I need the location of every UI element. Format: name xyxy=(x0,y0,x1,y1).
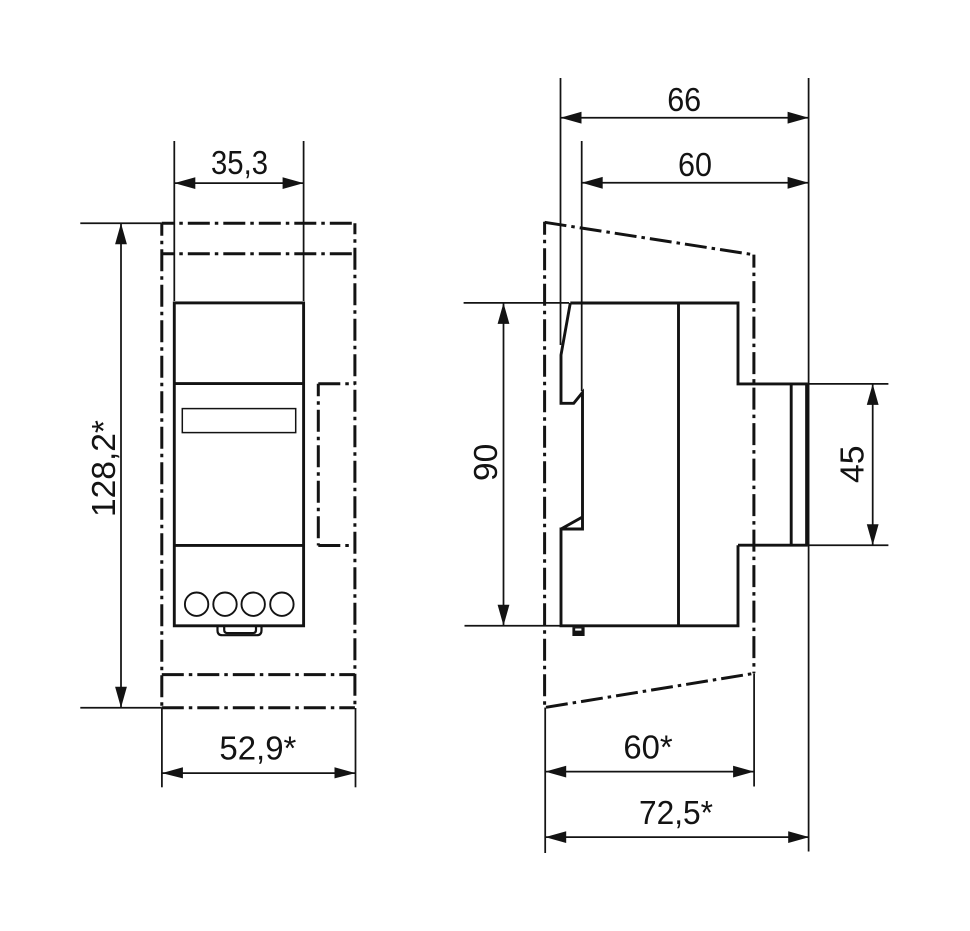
svg-text:128,2*: 128,2* xyxy=(85,420,122,517)
svg-text:60*: 60* xyxy=(623,729,672,766)
svg-text:35,3: 35,3 xyxy=(211,144,268,181)
svg-text:45: 45 xyxy=(834,446,871,484)
svg-text:90: 90 xyxy=(467,444,504,482)
svg-text:72,5*: 72,5* xyxy=(639,794,713,831)
svg-text:66: 66 xyxy=(667,81,701,118)
svg-text:60: 60 xyxy=(678,146,712,183)
svg-text:52,9*: 52,9* xyxy=(219,730,296,767)
